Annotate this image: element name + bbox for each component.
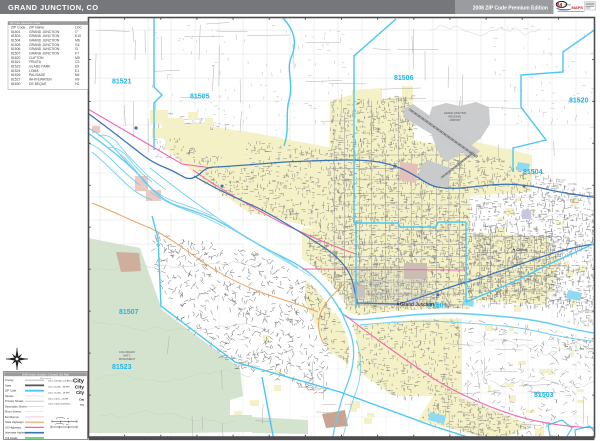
svg-text:81503: 81503 <box>11 34 21 38</box>
svg-text:km: km <box>66 424 69 426</box>
svg-text:2008 Grand Junction, Colorado: 2008 Grand Junction, Colorado City Map <box>22 372 70 376</box>
svg-text:81520: 81520 <box>569 98 589 105</box>
svg-text:81503: 81503 <box>534 392 554 399</box>
svg-text:GRAND JUNCTION: GRAND JUNCTION <box>29 34 60 38</box>
svg-text:81507: 81507 <box>11 52 21 56</box>
svg-text:Toll Roads: Toll Roads <box>5 436 18 440</box>
svg-text:PALISADE: PALISADE <box>29 73 46 77</box>
svg-text:DE BEQUE: DE BEQUE <box>29 82 47 86</box>
svg-text:Cities 5,000 - 24,999: Cities 5,000 - 24,999 <box>48 398 69 401</box>
svg-text:81630: 81630 <box>11 82 21 86</box>
svg-text:81505: 81505 <box>11 43 21 47</box>
svg-text:81523: 81523 <box>112 364 132 371</box>
svg-text:ZIP Code: ZIP Code <box>11 25 25 29</box>
svg-text:H2: H2 <box>75 82 79 86</box>
svg-text:G4: G4 <box>75 43 80 47</box>
svg-text:County: County <box>5 378 14 382</box>
svg-text:Cities 5,000 and Below: Cities 5,000 and Below <box>48 403 71 406</box>
svg-text:ZIP Name: ZIP Name <box>29 25 44 29</box>
svg-text:Minor Streets: Minor Streets <box>5 410 22 414</box>
svg-text:F7: F7 <box>75 52 79 56</box>
svg-text:81521: 81521 <box>112 79 132 86</box>
svg-text:City: City <box>73 378 85 384</box>
svg-text:81521: 81521 <box>11 60 21 64</box>
svg-text:Cities 25,000 - 49,999: Cities 25,000 - 49,999 <box>48 391 70 394</box>
svg-text:81526: 81526 <box>11 73 21 77</box>
svg-text:2008 ZIP Code Premium Edition: 2008 ZIP Code Premium Edition <box>473 6 548 12</box>
svg-text:Cities 100,000 and Above: Cities 100,000 and Above <box>48 380 74 383</box>
svg-text:MAPS: MAPS <box>572 5 584 10</box>
svg-text:Clifton: Clifton <box>516 247 527 252</box>
svg-text:State: State <box>5 383 12 387</box>
svg-text:GRAND JUNCTION, CO: GRAND JUNCTION, CO <box>8 3 99 12</box>
svg-text:Primary Streets: Primary Streets <box>5 399 24 403</box>
svg-text:81505: 81505 <box>190 94 210 101</box>
svg-text:City: City <box>79 397 84 401</box>
svg-text:Secondary Streets: Secondary Streets <box>5 404 28 408</box>
svg-text:arket: arket <box>565 3 572 7</box>
svg-text:81504: 81504 <box>523 169 543 176</box>
svg-text:Cities 50,000 - 99,999: Cities 50,000 - 99,999 <box>48 386 70 389</box>
svg-text:Streets: Streets <box>5 394 14 398</box>
svg-text:LOC: LOC <box>75 25 83 29</box>
svg-text:81507: 81507 <box>119 309 139 316</box>
svg-text:MONUMENT: MONUMENT <box>119 357 136 361</box>
svg-text:AIRPORT: AIRPORT <box>449 119 461 122</box>
svg-text:City: City <box>76 390 85 395</box>
svg-text:GRAND JUNCTION: GRAND JUNCTION <box>29 52 60 56</box>
svg-text:GRAND JUNCTION: GRAND JUNCTION <box>29 43 60 47</box>
svg-text:C3: C3 <box>75 60 79 64</box>
svg-text:FRUITA: FRUITA <box>29 60 42 64</box>
svg-text:ZIP Code: ZIP Code <box>5 389 17 393</box>
svg-text:81506: 81506 <box>394 75 414 82</box>
svg-text:US Highways: US Highways <box>5 425 22 429</box>
svg-text:N6: N6 <box>75 73 79 77</box>
svg-text:Exit Ramps: Exit Ramps <box>5 415 19 419</box>
svg-text:K10: K10 <box>75 34 81 38</box>
svg-text:Grand Junction: Grand Junction <box>400 302 434 308</box>
svg-text:State Highways: State Highways <box>5 420 24 424</box>
